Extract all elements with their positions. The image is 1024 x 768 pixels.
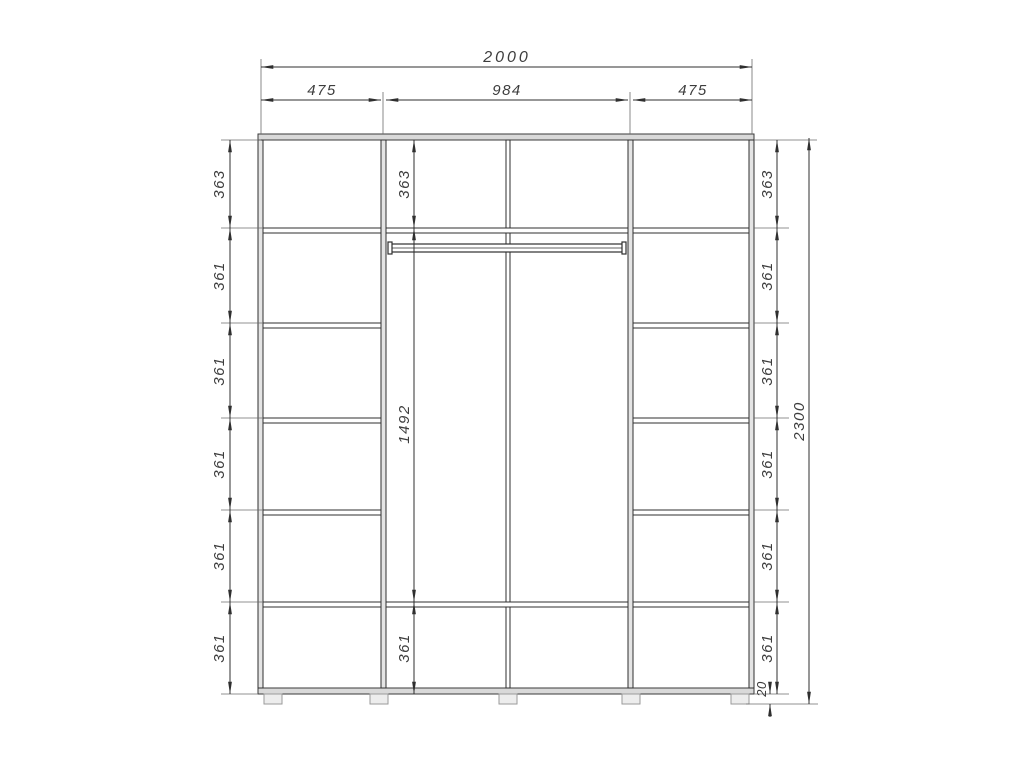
label-right-1: 363 [759,169,776,199]
partition-right [628,140,633,688]
shelf-left-3 [263,418,381,423]
label-right-6: 361 [759,633,776,663]
label-right-5: 361 [759,541,776,571]
label-right-section-width: 475 [678,82,708,99]
foot-2 [370,694,388,704]
drawing-sheet: 2000 475 984 475 363 361 361 361 361 361… [0,0,1024,768]
shelf-right-1 [633,228,749,233]
label-right-4: 361 [759,449,776,479]
label-middle-1: 363 [396,169,413,199]
label-left-2: 361 [211,261,228,291]
label-left-4: 361 [211,449,228,479]
top-panel [258,134,754,140]
shelf-left-1 [263,228,381,233]
shelf-right-5 [633,602,749,607]
label-right-3: 361 [759,356,776,386]
label-left-section-width: 475 [307,82,337,99]
shelf-right-3 [633,418,749,423]
label-left-1: 363 [211,169,228,199]
label-overall-height: 2300 [791,401,808,441]
shelf-left-4 [263,510,381,515]
partition-left [381,140,386,688]
shelf-middle-bottom [386,602,628,607]
bottom-panel [258,688,754,694]
shelf-middle-top [386,228,628,233]
dimension-lines [230,67,809,717]
rod-end-cap-right [622,242,626,254]
wardrobe-structure [258,134,754,704]
shelf-left-2 [263,323,381,328]
right-side-wall [749,140,754,688]
label-middle-3: 361 [396,633,413,663]
label-middle-section-width: 984 [492,82,522,99]
rod-end-cap-left [388,242,392,254]
left-side-wall [258,140,263,688]
foot-4 [622,694,640,704]
label-left-6: 361 [211,633,228,663]
foot-5 [731,694,749,704]
shelf-right-4 [633,510,749,515]
label-left-5: 361 [211,541,228,571]
label-right-2: 361 [759,261,776,291]
label-base-height: 20 [754,681,769,698]
shelf-left-5 [263,602,381,607]
label-left-3: 361 [211,356,228,386]
wardrobe-dimension-drawing: 2000 475 984 475 363 361 361 361 361 361… [0,0,1024,768]
foot-1 [264,694,282,704]
label-overall-width: 2000 [482,49,531,66]
shelf-right-2 [633,323,749,328]
label-middle-2: 1492 [396,404,413,443]
foot-3 [499,694,517,704]
